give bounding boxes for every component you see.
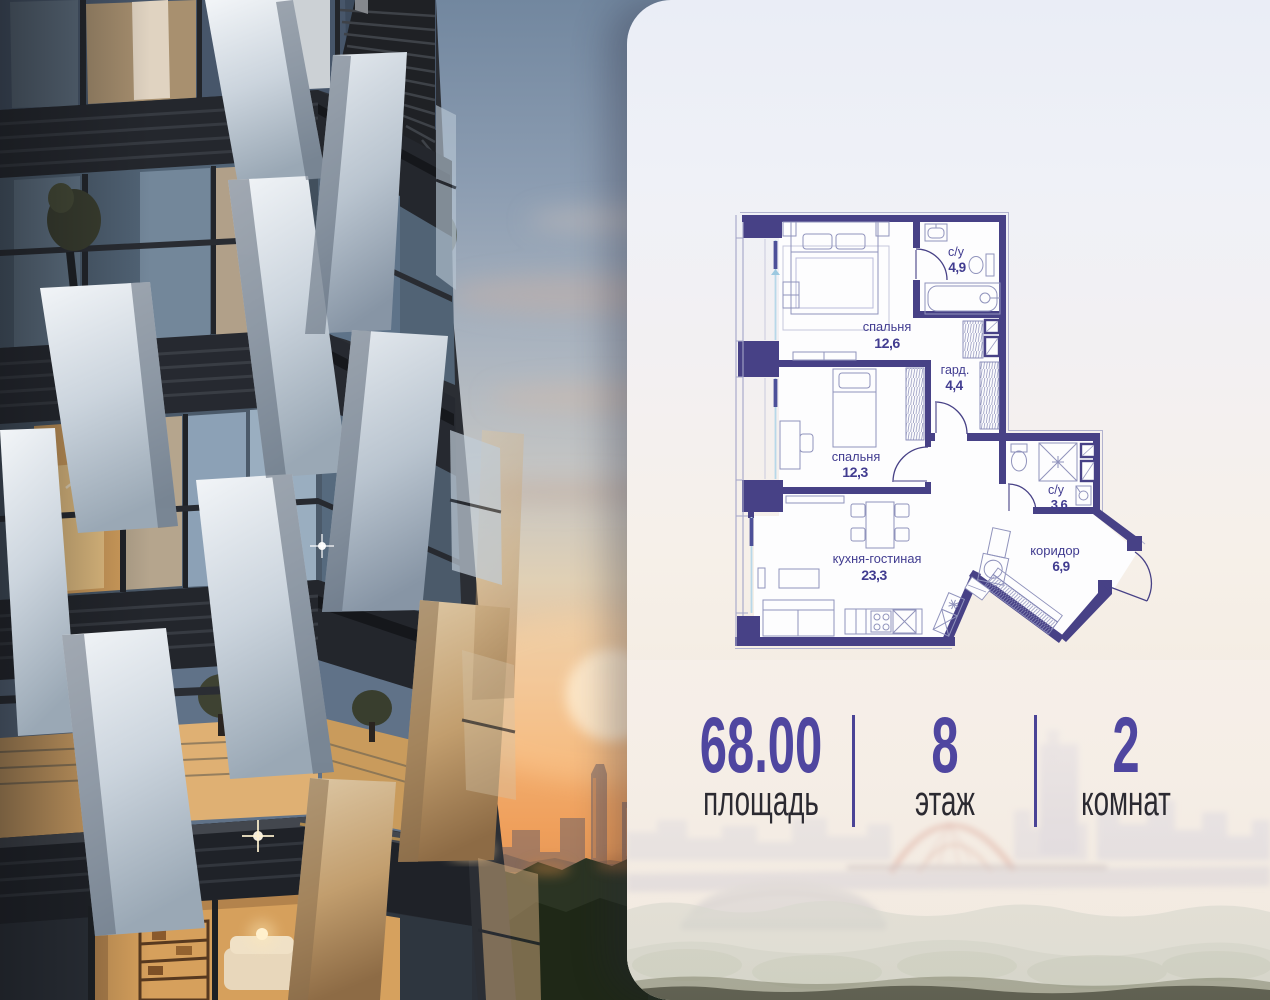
svg-text:4,9: 4,9: [948, 260, 965, 275]
svg-text:3,6: 3,6: [1051, 497, 1068, 512]
svg-text:спальня: спальня: [832, 449, 881, 464]
svg-text:спальня: спальня: [863, 319, 912, 334]
svg-text:12,6: 12,6: [874, 336, 900, 352]
svg-text:кухня-гостиная: кухня-гостиная: [833, 551, 922, 566]
svg-text:4,4: 4,4: [945, 378, 963, 393]
svg-text:гард.: гард.: [941, 363, 970, 377]
svg-text:коридор: коридор: [1030, 543, 1080, 558]
svg-text:с/у: с/у: [1048, 483, 1065, 497]
svg-text:с/у: с/у: [948, 245, 965, 259]
svg-text:23,3: 23,3: [861, 568, 887, 584]
svg-text:6,9: 6,9: [1052, 559, 1069, 574]
svg-text:12,3: 12,3: [842, 465, 868, 481]
